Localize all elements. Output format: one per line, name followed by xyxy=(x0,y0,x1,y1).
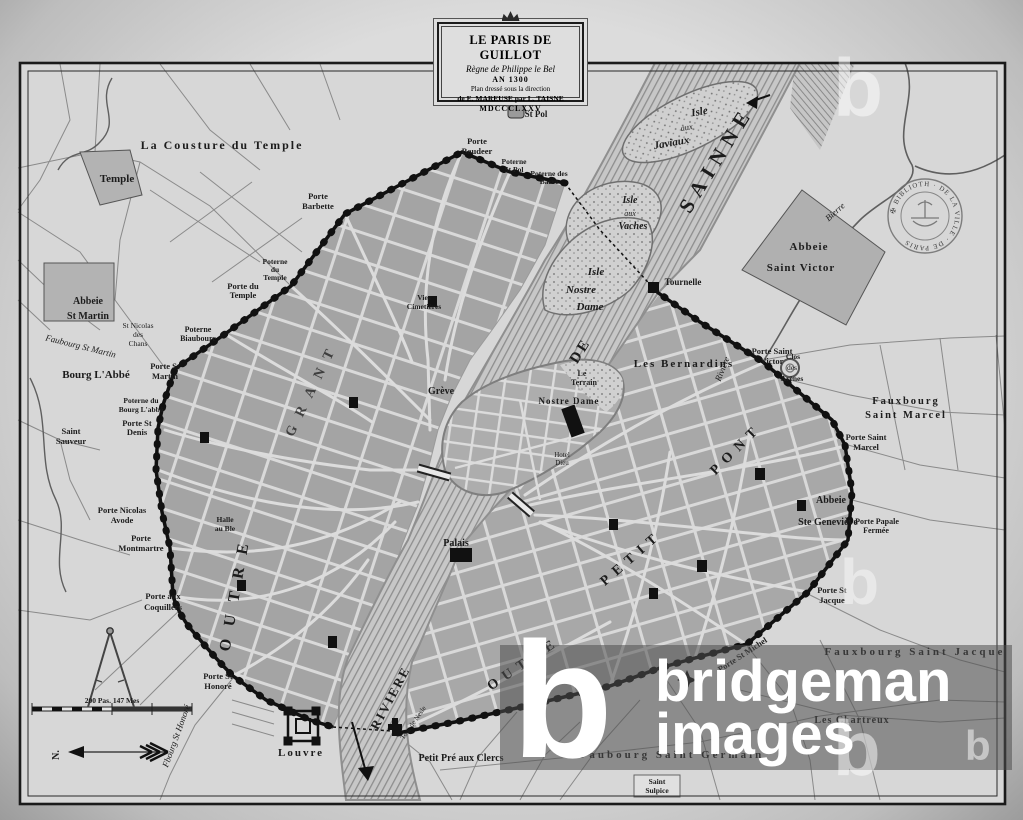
label-porte-st-martin-2: Martin xyxy=(152,371,178,381)
map-title: LE PARIS DE GUILLOT xyxy=(442,33,579,63)
label-poterne-biaubourc-2: Biaubourc xyxy=(180,334,216,343)
label-bourg-labbe: Bourg L'Abbé xyxy=(62,369,130,381)
title-cartouche: LE PARIS DE GUILLOT Règne de Philippe le… xyxy=(437,22,584,102)
label-le-terrain-2: Terrain xyxy=(571,378,597,387)
faint-watermark-b-top: b xyxy=(833,42,883,136)
isle-nd-line1: Isle xyxy=(587,266,605,278)
label-halle-au-ble-1: Halle xyxy=(216,515,234,524)
label-clos-arenes-2: des xyxy=(787,363,797,372)
label-porte-nicolas-1: Porte Nicolas xyxy=(98,505,147,515)
label-porte-st-marcel-1: Porte Saint xyxy=(846,432,887,442)
map-photo: ✠ BIBLIOTH · DE LA VILLE · DE PARIS OUTR… xyxy=(0,0,1023,820)
label-porte-barbette-1: Porte xyxy=(308,191,328,201)
label-les-bernardins: Les Bernardins xyxy=(634,358,734,370)
label-poterne-du-temple-3: Temple xyxy=(263,273,287,282)
label-cousture-du-temple: La Cousture du Temple xyxy=(141,138,304,152)
isle-vaches-line2: aux xyxy=(624,209,636,218)
label-porte-st-marcel-2: Marcel xyxy=(853,442,879,452)
label-poterne-st-pol-2: St Pol xyxy=(505,165,524,174)
label-poterne-bourg-labbe-1: Poterne du xyxy=(123,396,158,405)
label-palais: Palais xyxy=(443,538,469,549)
isle-vaches-line1: Isle xyxy=(622,195,639,206)
label-porte-montmartre-1: Porte xyxy=(131,533,151,543)
label-abbeie-st-victor-2: Saint Victor xyxy=(767,262,836,274)
tournelle-tower-icon xyxy=(648,282,659,293)
faint-watermark-b-bottom: b xyxy=(833,703,881,794)
label-nostre-dame: Nostre Dame xyxy=(538,396,599,406)
label-fx-st-marcel-1: Fauxbourg xyxy=(872,396,940,407)
isle-javiaux-line2: aux xyxy=(680,121,694,133)
bridgeman-logo-b: b xyxy=(512,618,613,783)
label-porte-st-honore-2: Honoré xyxy=(204,681,232,691)
label-halle-au-ble-2: au Ble xyxy=(215,524,236,533)
label-petit-pre: Petit Pré aux Clercs xyxy=(418,753,503,764)
faint-watermark-b-mid: b xyxy=(840,545,879,619)
label-clos-arenes-1: Clos xyxy=(786,352,800,361)
cartouche-inner-frame: LE PARIS DE GUILLOT Règne de Philippe le… xyxy=(441,26,580,98)
label-vies-cimetieres-2: Cimetières xyxy=(407,302,442,311)
label-poterne-bourg-labbe-2: Bourg L'abbé xyxy=(119,405,164,414)
north-label: N. xyxy=(51,750,62,760)
label-abbeie-st-martin-1: Abbeie xyxy=(73,296,104,307)
label-st-nicolas-1: St Nicolas xyxy=(122,321,153,330)
label-porte-papale-1: Porte Papale xyxy=(855,517,899,526)
label-clos-arenes-3: Arènes xyxy=(781,374,804,383)
map-credit-line2: de E. MAREUSE par L. TAISNE xyxy=(442,94,579,103)
label-porte-st-denis-2: Denis xyxy=(127,427,148,437)
label-porte-st-victor-2: Victor xyxy=(761,356,784,366)
label-porte-nicolas-2: Avode xyxy=(111,515,134,525)
bridgeman-wordmark: bridgeman images xyxy=(655,655,952,762)
label-abbeie-st-victor-1: Abbeie xyxy=(790,241,829,253)
label-temple: Temple xyxy=(100,173,135,185)
label-poterne-biaubourc-1: Poterne xyxy=(185,325,212,334)
isle-nd-line3: Dame xyxy=(576,301,604,313)
palais-icon xyxy=(450,548,472,562)
label-porte-coquillers-2: Coquillers xyxy=(144,602,182,612)
label-porte-baudeer-1: Porte xyxy=(467,136,487,146)
label-hotel-dieu-2: Dieu xyxy=(555,459,569,467)
label-ste-genevieve-1: Abbeie xyxy=(816,495,847,506)
isle-nd-line2: Nostre xyxy=(565,284,596,296)
label-saint-sulpice-1: Saint xyxy=(649,777,666,786)
map-year: AN 1300 xyxy=(442,75,579,84)
label-porte-du-temple-2: Temple xyxy=(230,290,257,300)
label-porte-barbette-2: Barbette xyxy=(302,201,334,211)
label-greve: Grève xyxy=(428,386,455,397)
label-abbeie-st-martin-2: St Martin xyxy=(67,311,109,322)
label-le-terrain-1: Le xyxy=(578,369,587,378)
label-saint-sauveur-1: Saint xyxy=(62,426,81,436)
label-porte-baudeer-2: Baudeer xyxy=(462,146,493,156)
label-st-nicolas-2: des xyxy=(133,330,143,339)
isle-vaches-line3: Vaches xyxy=(619,221,648,232)
scale-label: 200 Pas. 147 Mes xyxy=(85,696,140,705)
label-porte-coquillers-1: Porte aux xyxy=(145,591,181,601)
label-fx-st-marcel-2: Saint Marcel xyxy=(865,410,947,421)
label-saint-sulpice-2: Sulpice xyxy=(645,786,669,795)
bridgeman-wordmark-line1: bridgeman xyxy=(655,655,952,708)
label-porte-st-martin-1: Porte St xyxy=(150,361,180,371)
label-porte-st-honore-1: Porte St xyxy=(203,671,233,681)
map-credit-line1: Plan dressé sous la direction xyxy=(442,85,579,93)
label-vies-cimetieres-1: Vies xyxy=(417,293,431,302)
bridgeman-wordmark-line2: images xyxy=(655,708,952,761)
label-hotel-dieu-1: Hotel xyxy=(554,451,570,459)
label-ste-genevieve-2: Ste Geneviève xyxy=(798,517,858,528)
label-porte-papale-2: Fermée xyxy=(863,526,889,535)
map-roman-date: MDCCCLXXV xyxy=(442,104,579,113)
label-porte-montmartre-2: Montmartre xyxy=(118,543,163,553)
label-tournelle: Tournelle xyxy=(665,277,702,287)
label-st-nicolas-3: Chans xyxy=(129,339,148,348)
label-louvre: Louvre xyxy=(278,747,324,759)
label-poterne-des-barre-2: Barre xyxy=(540,177,559,186)
map-subtitle: Règne de Philippe le Bel xyxy=(442,64,579,74)
faint-watermark-b-small: b xyxy=(965,722,991,770)
label-saint-sauveur-2: Sauveur xyxy=(56,436,86,446)
